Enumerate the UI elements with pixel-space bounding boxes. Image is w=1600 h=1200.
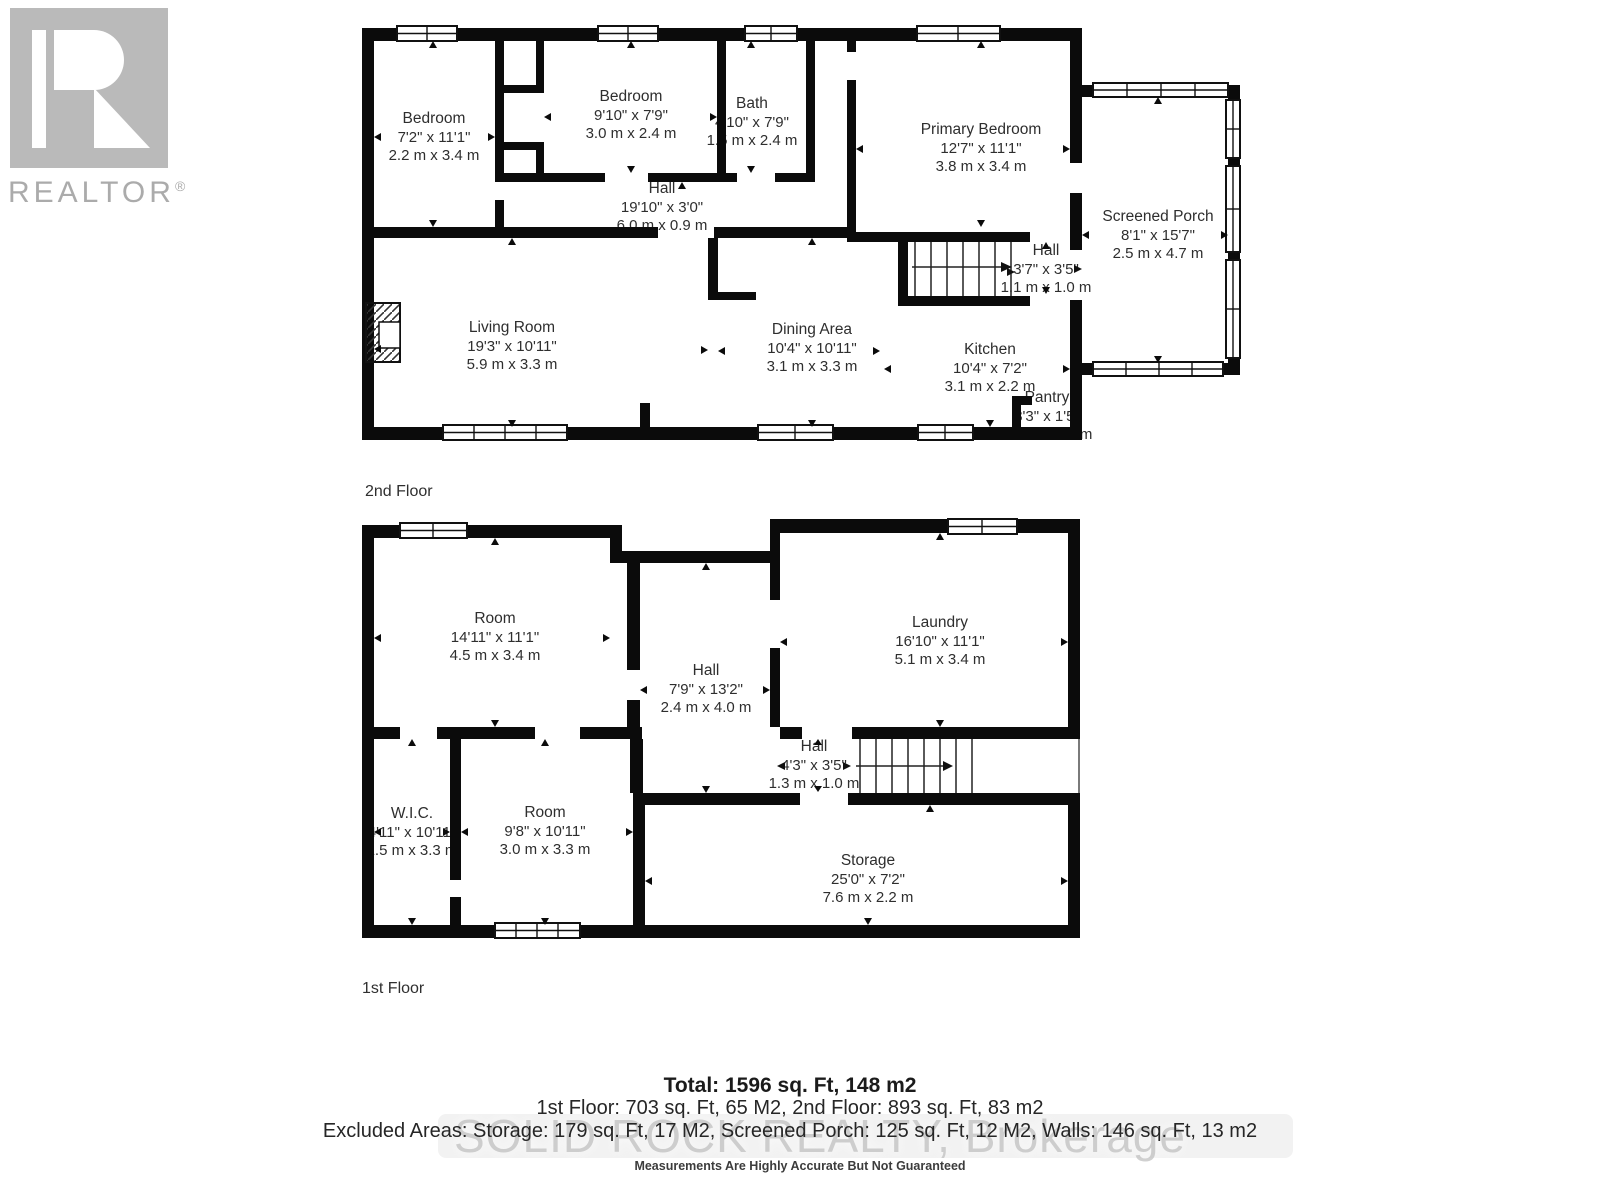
area-summary: Total: 1596 sq. Ft, 148 m2 1st Floor: 70…	[0, 1074, 1580, 1143]
first-floor-stairs	[856, 739, 1079, 793]
realtor-logo-text: REALTOR®	[8, 176, 185, 210]
floor-areas-line: 1st Floor: 703 sq. Ft, 65 M2, 2nd Floor:…	[0, 1097, 1580, 1120]
excluded-areas-line: Excluded Areas: Storage: 179 sq. Ft, 17 …	[0, 1120, 1580, 1143]
fireplace-icon	[366, 303, 400, 362]
second-floor-stair-arrow	[1001, 262, 1082, 276]
brand-name: REALTOR	[8, 176, 175, 209]
disclaimer-text: Measurements Are Highly Accurate But Not…	[0, 1159, 1600, 1173]
second-floor-caption: 2nd Floor	[365, 483, 433, 501]
second-floor-stairs	[912, 242, 1011, 296]
first-floor-walls	[362, 519, 1080, 938]
realtor-logo-icon	[10, 8, 168, 168]
first-floor-caption: 1st Floor	[362, 980, 424, 998]
total-area-line: Total: 1596 sq. Ft, 148 m2	[0, 1074, 1580, 1097]
floor-plan-page: REALTOR®	[0, 0, 1600, 1200]
floor-plan-drawing	[0, 0, 1600, 1200]
registered-mark: ®	[175, 178, 185, 194]
